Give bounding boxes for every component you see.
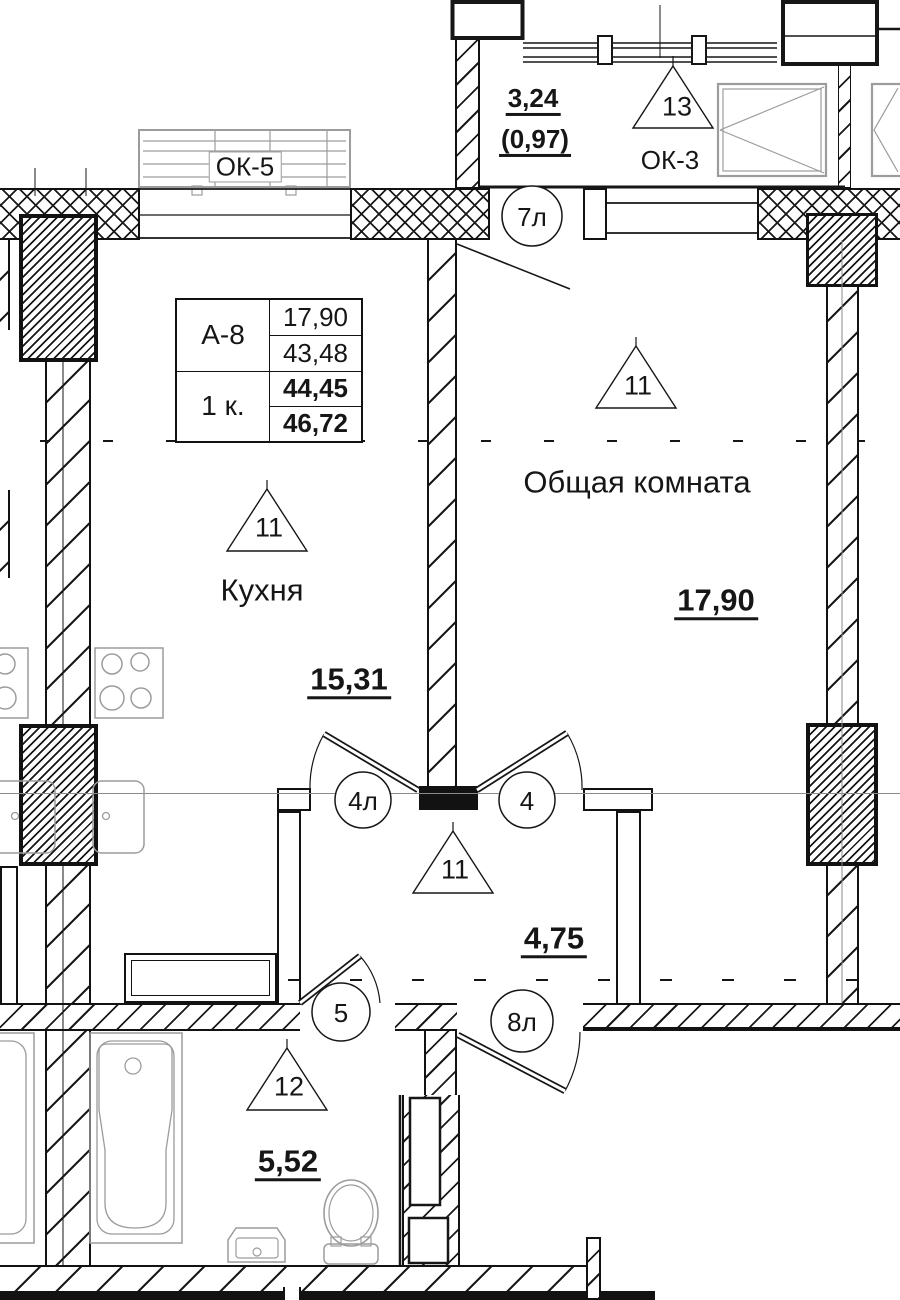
- balcony-marker: 13: [662, 92, 692, 121]
- bathtub-neighbor: [0, 1033, 34, 1243]
- kitchen-area: 15,31: [307, 662, 391, 699]
- window-opening-lines: [140, 189, 757, 238]
- door-label-7l: 7л: [517, 203, 547, 231]
- unit-number: А-8: [177, 300, 269, 371]
- vent-ducts: [400, 1095, 448, 1265]
- kitchen-sink: [93, 781, 144, 853]
- living-area-value: 43,48: [269, 335, 361, 370]
- living-room-area: 17,90: [674, 583, 758, 620]
- kitchen-sink-neighbor: [0, 781, 55, 853]
- balcony-area-coeff: (0,97): [499, 125, 571, 157]
- living-room-name: Общая комната: [512, 465, 762, 498]
- bathroom-area: 5,52: [255, 1144, 321, 1181]
- room-area-value: 17,90: [269, 300, 361, 335]
- linework-layer: [0, 0, 900, 1300]
- bathroom-marker: 12: [274, 1072, 304, 1101]
- unit-type: 1 к.: [177, 371, 269, 442]
- apartment-info-table: А-8 17,90 43,48 1 к. 44,45 46,72: [175, 298, 363, 443]
- window-label-ok3: ОК-3: [641, 146, 700, 174]
- window-symbol-ok3: [718, 84, 826, 176]
- kitchen-marker: 11: [255, 513, 283, 542]
- toilet: [324, 1180, 378, 1264]
- living-room-marker: 11: [624, 371, 652, 400]
- hall-area: 4,75: [521, 921, 587, 958]
- bathroom-sink: [228, 1228, 285, 1262]
- door-leaf-7l: [457, 244, 570, 289]
- window-label-ok5: ОК-5: [209, 151, 282, 182]
- floor-plan: А-8 17,90 43,48 1 к. 44,45 46,72 3,24 (0…: [0, 0, 900, 1300]
- bottom-wall-notch: [283, 1287, 301, 1300]
- door-label-4l: 4л: [348, 787, 378, 815]
- total-area-value: 46,72: [269, 406, 361, 441]
- stove: [95, 648, 163, 718]
- door-label-8l: 8л: [507, 1008, 537, 1036]
- area-wo-balcony-value: 44,45: [269, 371, 361, 406]
- door-label-5: 5: [334, 999, 348, 1027]
- centerlines: [0, 168, 900, 1265]
- kitchen-niche: [124, 953, 277, 1003]
- window-symbol-neighbor: [872, 84, 900, 176]
- kitchen-name: Кухня: [221, 573, 304, 606]
- hall-marker: 11: [441, 855, 469, 884]
- balcony-area: 3,24: [506, 84, 561, 116]
- stove-neighbor: [0, 648, 28, 718]
- kitchen-niche-inner: [131, 960, 270, 996]
- door-label-4: 4: [520, 787, 534, 815]
- bathtub: [90, 1033, 182, 1243]
